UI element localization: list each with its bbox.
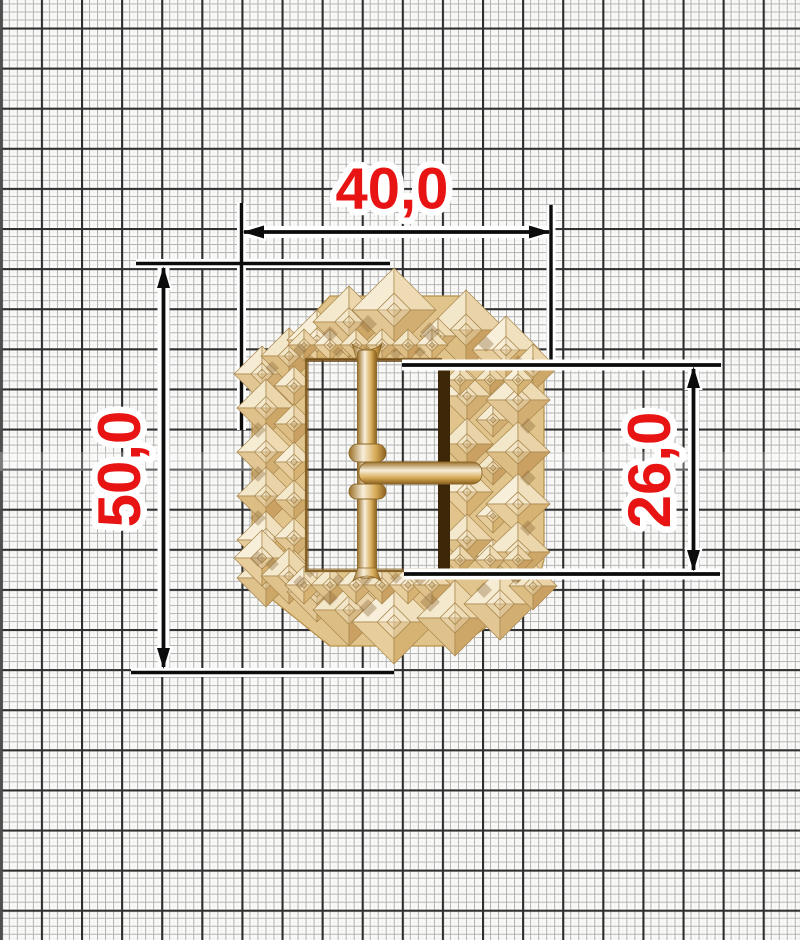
svg-text:26,0: 26,0 (616, 412, 683, 529)
svg-text:40,0: 40,0 (336, 157, 449, 222)
svg-text:50,0: 50,0 (86, 411, 153, 528)
